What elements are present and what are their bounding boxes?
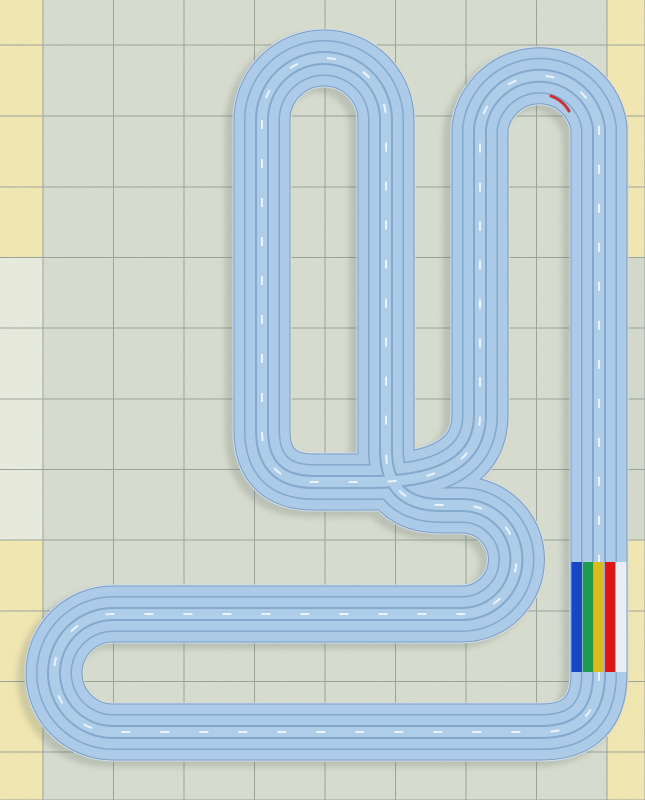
track-scene-canvas[interactable] — [0, 0, 645, 800]
track-editor-viewport[interactable] — [0, 0, 645, 800]
start-lane-red-lane — [605, 562, 616, 672]
start-lane-yellow-lane — [594, 562, 605, 672]
start-lane-white-lane — [616, 562, 627, 672]
start-finish-line — [572, 562, 627, 672]
floor-speckle-texture — [0, 0, 645, 800]
start-lane-green-lane — [583, 562, 594, 672]
start-lane-blue-lane — [572, 562, 583, 672]
